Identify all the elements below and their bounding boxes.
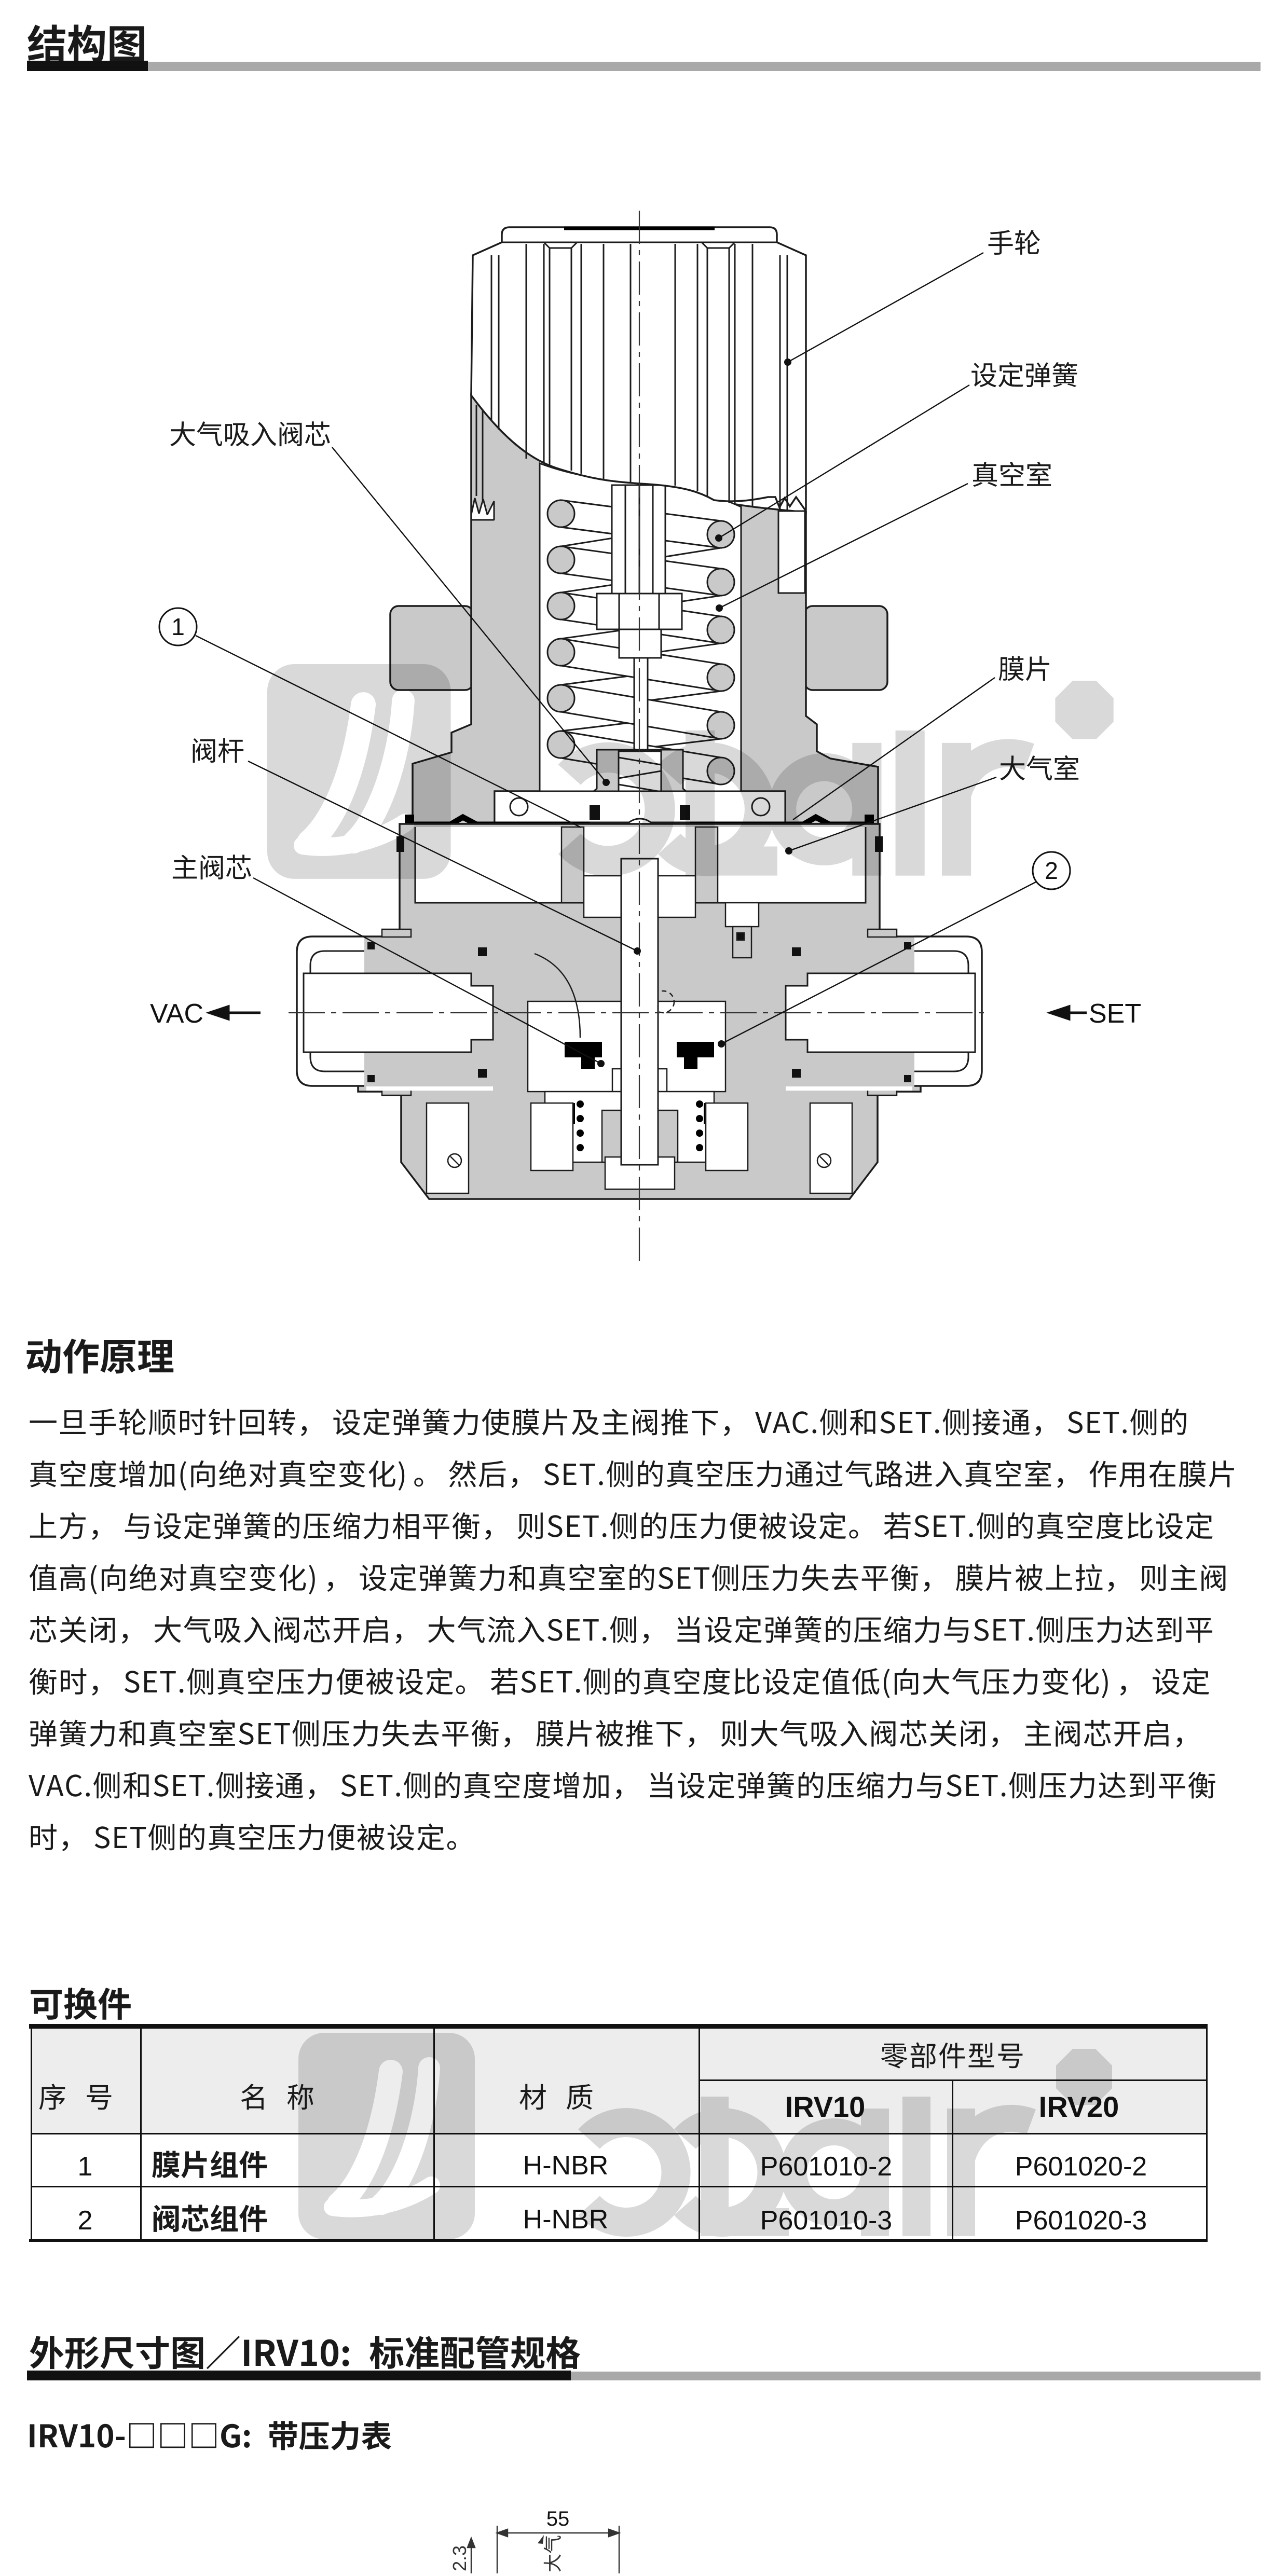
svg-text:IRV10: IRV10 xyxy=(785,2090,866,2123)
svg-text:2: 2 xyxy=(1045,857,1058,884)
svg-text:2: 2 xyxy=(78,2206,93,2236)
svg-text:SET: SET xyxy=(1089,999,1141,1029)
svg-text:1: 1 xyxy=(78,2152,93,2182)
svg-text:1: 1 xyxy=(171,613,185,640)
svg-text:H-NBR: H-NBR xyxy=(523,2151,609,2181)
svg-text:VAC: VAC xyxy=(150,999,203,1029)
svg-text:55: 55 xyxy=(546,2508,570,2530)
svg-text:P601020-2: P601020-2 xyxy=(1015,2152,1147,2182)
svg-text:P601020-3: P601020-3 xyxy=(1015,2206,1147,2236)
svg-text:2.3: 2.3 xyxy=(449,2545,470,2571)
